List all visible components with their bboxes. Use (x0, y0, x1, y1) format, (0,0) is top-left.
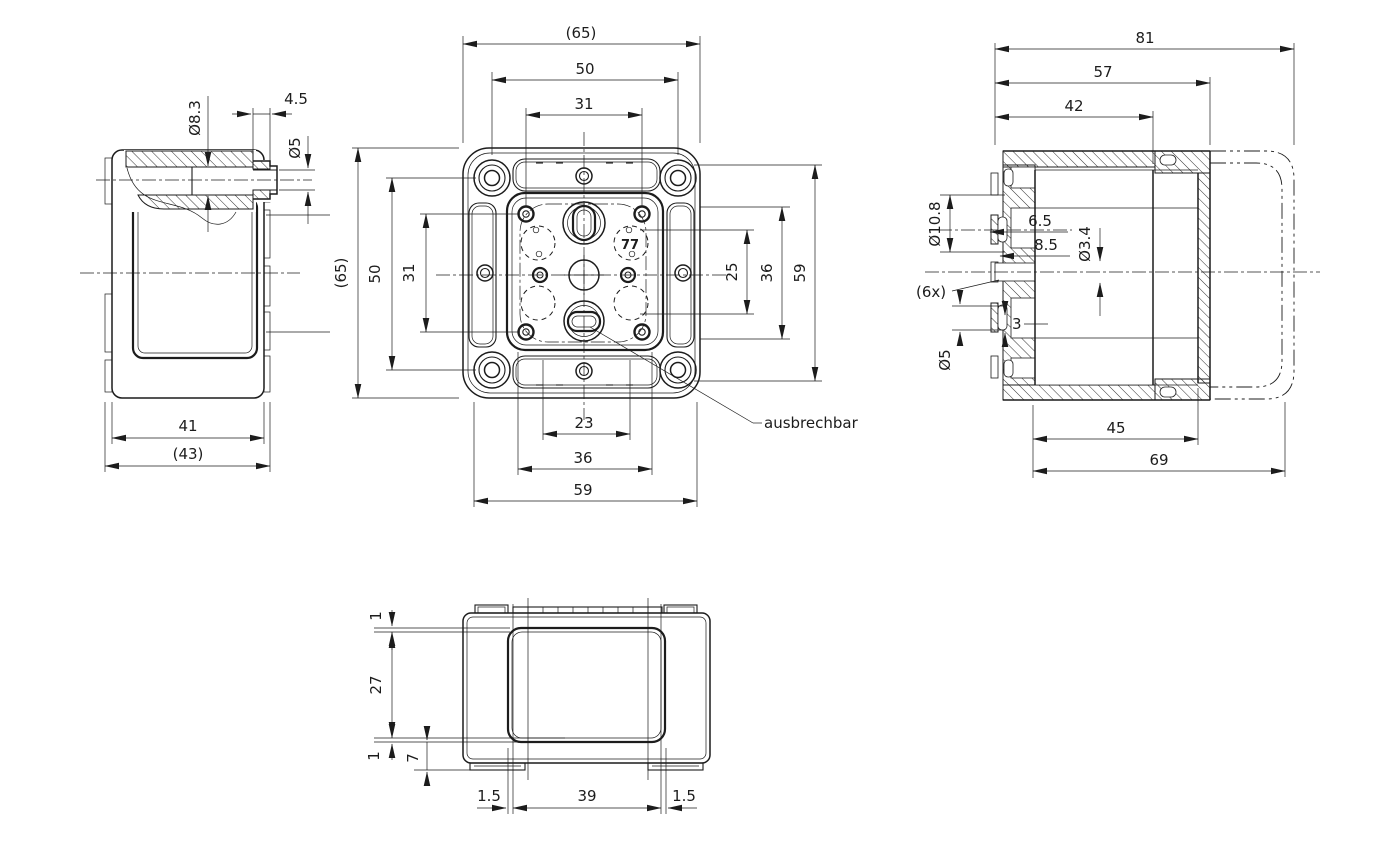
dim-bottom-width: 39 (577, 787, 596, 805)
callout-leader (590, 327, 753, 423)
dim-front-left-bosses: 31 (400, 263, 418, 282)
latch-tabs (475, 605, 697, 613)
front-view: 77 (65) 50 31 (65) 5 (332, 24, 859, 507)
dim-section-bottom-inner: 45 (1106, 419, 1125, 437)
dim-bottom-depth: 27 (367, 675, 385, 694)
dim-bottom-right-offset: 1.5 (672, 787, 696, 805)
dim-side-width-inner: 41 (178, 417, 197, 435)
dim-section-top-body: 57 (1093, 63, 1112, 81)
mounting-feet (470, 763, 703, 770)
mold-marking: 77 (621, 238, 639, 253)
gland-boss-section (124, 150, 279, 224)
section-view: 81 57 42 Ø10.8 6.5 8.5 Ø3.4 (6x) 3 (916, 29, 1320, 478)
front-view-geometry: 77 (436, 132, 730, 420)
lid-opening-outline (508, 628, 665, 742)
dim-section-bottom-flange: 69 (1149, 451, 1168, 469)
side-view-dimensions: Ø8.3 4.5 Ø5 41 (43) (105, 90, 315, 472)
terminal-wall-section (991, 165, 1035, 385)
dim-section-top-inner: 42 (1064, 97, 1083, 115)
bottom-view-geometry (374, 598, 710, 780)
dim-front-top-bosses: 31 (574, 95, 593, 113)
bottom-view-dimensions: 1 27 1 7 1.5 39 1.5 (365, 604, 697, 814)
dim-bottom-lip-bottom: 1 (365, 751, 383, 761)
dim-bottom-lip-top: 1 (367, 611, 385, 621)
dim-section-hole-diameter: Ø3.4 (1076, 226, 1094, 262)
technical-drawing-sheet: Ø8.3 4.5 Ø5 41 (43) (0, 0, 1397, 852)
dim-front-bottom-mid: 36 (573, 449, 592, 467)
callout-ausbrechbar: ausbrechbar (764, 414, 859, 432)
dim-section-offset1: 6.5 (1028, 212, 1052, 230)
bottom-view: 1 27 1 7 1.5 39 1.5 (365, 598, 710, 814)
dim-section-offset2: 8.5 (1034, 236, 1058, 254)
side-view: Ø8.3 4.5 Ø5 41 (43) (80, 90, 330, 472)
dim-front-bottom-inner: 59 (573, 481, 592, 499)
dim-bottom-left-offset: 1.5 (477, 787, 501, 805)
dim-bottom-foot: 7 (404, 753, 422, 763)
dim-side-stub-length: 4.5 (284, 90, 308, 108)
lid-centerline-contour (520, 204, 646, 342)
dim-side-stub-diameter: Ø5 (286, 137, 304, 158)
dim-front-top-overall: (65) (566, 24, 597, 42)
drawing-canvas: Ø8.3 4.5 Ø5 41 (43) (0, 0, 1397, 852)
dim-section-top-overall: 81 (1135, 29, 1154, 47)
label-count-6x: (6x) (916, 283, 946, 301)
dim-front-right-inner: 59 (791, 263, 809, 282)
dim-front-top-screws: 50 (575, 60, 594, 78)
dim-front-left-overall: (65) (332, 258, 350, 289)
dim-front-bottom-slot: 23 (574, 414, 593, 432)
dim-front-right-glands: 25 (723, 262, 741, 281)
dim-section-terminal-diameter: Ø10.8 (926, 201, 944, 246)
dim-front-right-mid: 36 (758, 263, 776, 282)
dim-side-width-outer: (43) (173, 445, 204, 463)
section-view-geometry (925, 151, 1320, 400)
side-view-geometry (80, 150, 330, 398)
phantom-cover-outline (1210, 151, 1294, 399)
dim-section-slot: 3 (1012, 315, 1022, 333)
dim-section-lower-diameter: Ø5 (936, 349, 954, 370)
dim-side-bore-diameter: Ø8.3 (186, 100, 204, 136)
dim-front-left-screws: 50 (366, 264, 384, 283)
